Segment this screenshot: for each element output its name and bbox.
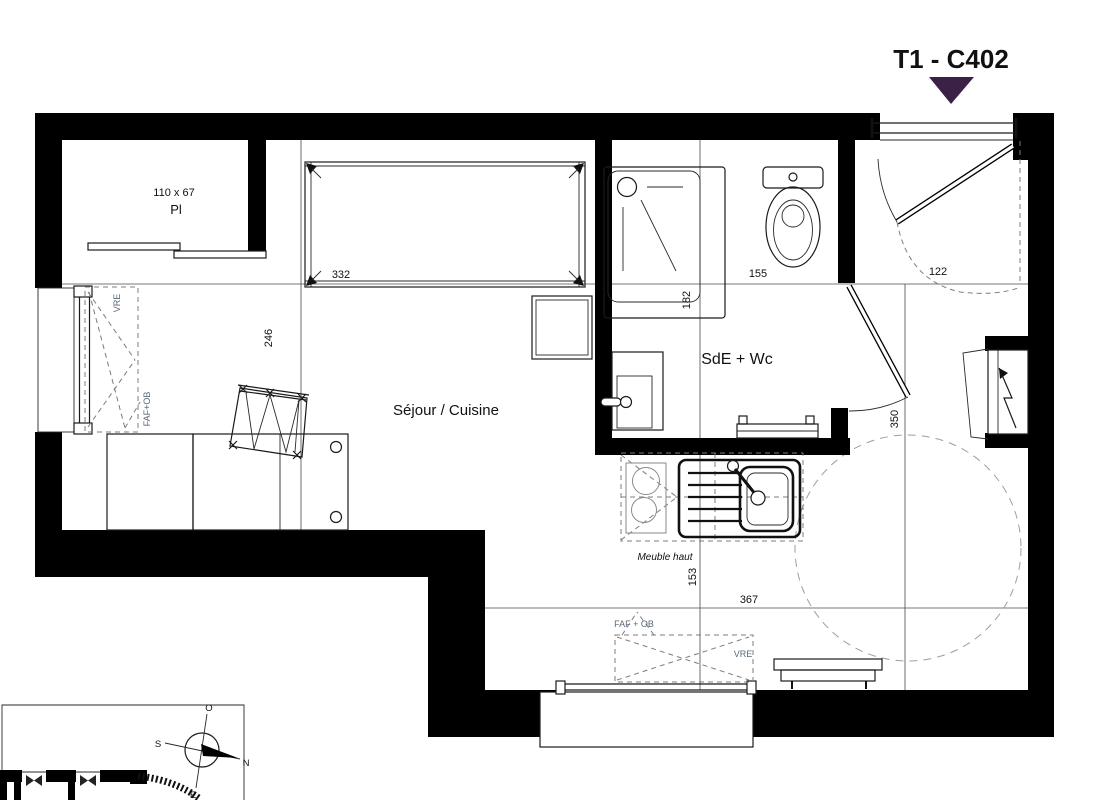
towel-radiator <box>737 416 818 438</box>
turning-circle <box>795 435 1021 661</box>
bottom-window-sill <box>540 692 753 747</box>
night-stand <box>532 296 592 359</box>
shower-tray <box>608 171 700 302</box>
kitchen <box>621 453 803 541</box>
closet-size-label: 110 x 67 <box>153 187 194 199</box>
dim-350: 350 <box>889 410 901 428</box>
compass-needle <box>201 744 238 758</box>
closet <box>88 243 266 258</box>
desk-grommet <box>331 442 342 453</box>
toilet <box>763 167 823 267</box>
key-plan-wall <box>46 770 76 782</box>
living-room-label: Séjour / Cuisine <box>393 402 499 419</box>
dim-122: 122 <box>929 266 947 278</box>
compass-south-label: S <box>155 739 161 750</box>
electrical-panel-box <box>988 350 1028 434</box>
walls <box>35 113 1054 737</box>
unit-title: T1 - C402 <box>893 44 1009 74</box>
shower <box>604 167 725 318</box>
floor-plan-page: Séjour / Cuisine SdE + Wc 110 x 67 Pl Me… <box>0 0 1120 800</box>
radiator <box>774 659 882 689</box>
radiator-top <box>774 659 882 670</box>
washbasin-faucet-knob <box>621 397 632 408</box>
entry-door-leaf-core <box>897 146 1013 222</box>
wall-panel-stub-top <box>985 336 1028 351</box>
shower-drain <box>618 178 637 197</box>
left-window-swing-line <box>88 360 135 427</box>
dim-182: 182 <box>681 291 693 309</box>
chair <box>229 385 309 459</box>
bottom-window <box>540 612 756 747</box>
title-block: T1 - C402 <box>893 44 1009 104</box>
toilet-button <box>789 173 797 181</box>
washbasin-cabinet <box>612 352 663 430</box>
compass-west-label: O <box>205 703 212 714</box>
dim-153: 153 <box>687 568 699 586</box>
wall-top <box>35 113 880 140</box>
radiator-body <box>781 670 875 681</box>
wall-bottom-segment-right <box>753 690 1054 737</box>
left-window <box>38 286 140 434</box>
bathroom-door-leaf-core <box>849 286 908 396</box>
left-window-cap-top <box>74 286 92 297</box>
key-plan: O S N E <box>0 703 250 800</box>
cooktop-diagonal <box>621 497 677 540</box>
wall-right <box>1028 113 1054 737</box>
wall-bathroom-bottom <box>595 438 850 455</box>
cooktop-diagonal <box>621 455 677 497</box>
wall-left-upper <box>35 113 62 288</box>
closet-sliding-door-left <box>88 243 180 250</box>
sink-faucet-knob <box>751 491 765 505</box>
wall-bottom-left <box>35 530 485 577</box>
bathroom-label: SdE + Wc <box>701 351 773 368</box>
entry-door-clearance-arc <box>897 222 1018 293</box>
dim-155: 155 <box>749 268 767 280</box>
shower-enclosure <box>604 167 725 318</box>
unit-pointer-triangle <box>929 77 974 104</box>
left-window-reveal <box>38 288 74 432</box>
desk-grommet <box>331 512 342 523</box>
bed-corner-arrows <box>306 163 584 286</box>
night-stand-outline <box>532 296 592 359</box>
closet-sliding-door-right <box>174 251 266 258</box>
cooktop-burner <box>632 498 657 523</box>
electrical-panel <box>963 349 1028 439</box>
washbasin-faucet <box>601 398 621 406</box>
wall-bathroom-right-upper <box>838 140 855 283</box>
cooktop-burner <box>633 468 660 495</box>
night-stand-inner <box>536 300 588 355</box>
dim-367: 367 <box>740 594 758 606</box>
compass-north-label: N <box>243 758 250 769</box>
electrical-panel-door <box>963 349 988 439</box>
bathroom-door <box>849 286 908 411</box>
toilet-cistern <box>763 167 823 188</box>
shower-detail-line <box>641 200 676 271</box>
bottom-window-vre-tag: VRE <box>734 649 753 659</box>
desk <box>193 434 348 530</box>
towel-radiator-bracket <box>739 416 747 424</box>
toilet-flush-circle <box>782 205 804 227</box>
wall-closet-right <box>248 140 266 255</box>
chair-folding-lines <box>246 393 299 452</box>
bottom-window-fafob-tag: FAF + OB <box>614 619 654 629</box>
wall-bottom-segment-left <box>428 690 556 737</box>
closet-label: Pl <box>170 202 182 217</box>
floor-plan-drawing: Séjour / Cuisine SdE + Wc 110 x 67 Pl Me… <box>0 0 1120 800</box>
key-plan-interior-wall <box>14 782 21 800</box>
bathroom-door-swing-arc <box>849 397 908 411</box>
dimension-lines <box>62 140 1028 690</box>
bottom-window-cap-right <box>747 681 756 694</box>
toilet-bowl-inner <box>774 200 813 260</box>
desk-cabinet <box>107 434 193 530</box>
key-plan-interior-wall <box>68 782 75 800</box>
entry-door-swing-arc <box>878 159 897 222</box>
key-plan-wall-left-edge <box>0 770 7 800</box>
left-window-vre-tag: VRE <box>112 294 122 313</box>
bottom-window-cap-left <box>556 681 565 694</box>
key-plan-building <box>0 770 200 800</box>
dim-332: 332 <box>332 269 350 281</box>
upper-cabinet-label: Meuble haut <box>637 552 693 563</box>
dim-246: 246 <box>263 329 275 347</box>
left-window-fafob-tag: FAF+OB <box>142 392 152 427</box>
wall-bathroom-right-stub <box>831 408 848 438</box>
towel-radiator-bracket <box>806 416 814 424</box>
wall-panel-stub-bottom <box>985 433 1028 448</box>
